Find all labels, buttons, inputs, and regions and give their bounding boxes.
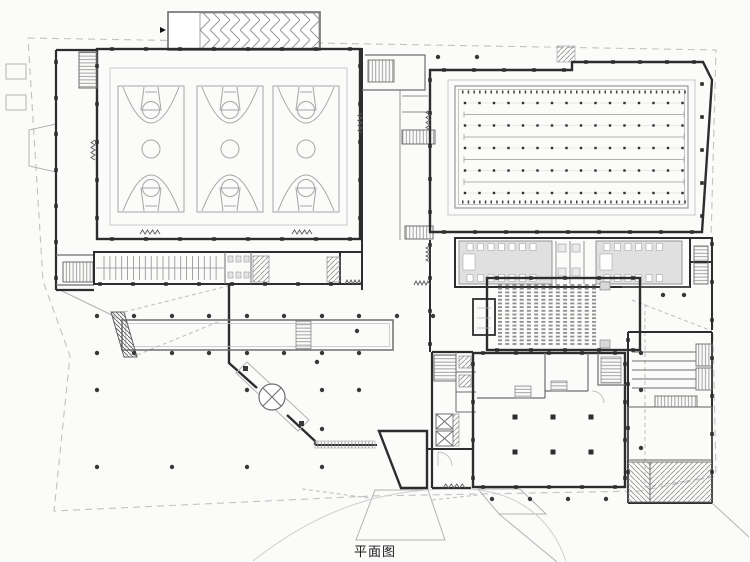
plan-title: 平面图: [0, 541, 750, 560]
stair-hall-northeast: [601, 357, 621, 383]
multi-purpose-hall: [473, 353, 625, 487]
basketball-hall: [56, 49, 360, 290]
south-entry-steps: [356, 490, 445, 540]
control-booth: [473, 299, 495, 335]
door-swing-arc: [438, 452, 452, 466]
elevators: [436, 414, 459, 446]
hall-columns: [513, 415, 594, 455]
east-wing: [628, 332, 712, 503]
stair-corridor-north: [368, 60, 394, 82]
plaza-ramp: [111, 312, 137, 357]
service-core: [432, 352, 476, 488]
flag-marker-icon: [160, 27, 166, 33]
stair-east-north: [694, 246, 708, 284]
locker-benches: [96, 256, 224, 280]
floor-plan-page: 平面图: [0, 0, 750, 562]
swimming-pool-lanes: [455, 86, 688, 208]
swimming-pool-hall: [430, 62, 712, 232]
wc-fixtures: [228, 256, 249, 278]
sunken-corridor-strip: [111, 312, 393, 357]
auditorium-seats: [498, 284, 596, 345]
stair-east-band: [655, 396, 697, 407]
revolving-door: [236, 362, 309, 431]
stair-southwest: [63, 262, 93, 282]
floor-plan-drawing: [0, 0, 750, 562]
west-vestibule: [29, 124, 56, 172]
ramp-chevron-hatch: [200, 13, 319, 49]
central-corridor: [362, 48, 435, 290]
basketball-courts: [118, 86, 339, 212]
stair-strip: [296, 321, 311, 349]
vehicle-ramp: [650, 462, 712, 502]
south-vestibule: [379, 431, 427, 488]
stair-core: [434, 355, 456, 381]
exterior-wide-stairs: [632, 352, 696, 388]
stair-northwest: [79, 52, 97, 88]
